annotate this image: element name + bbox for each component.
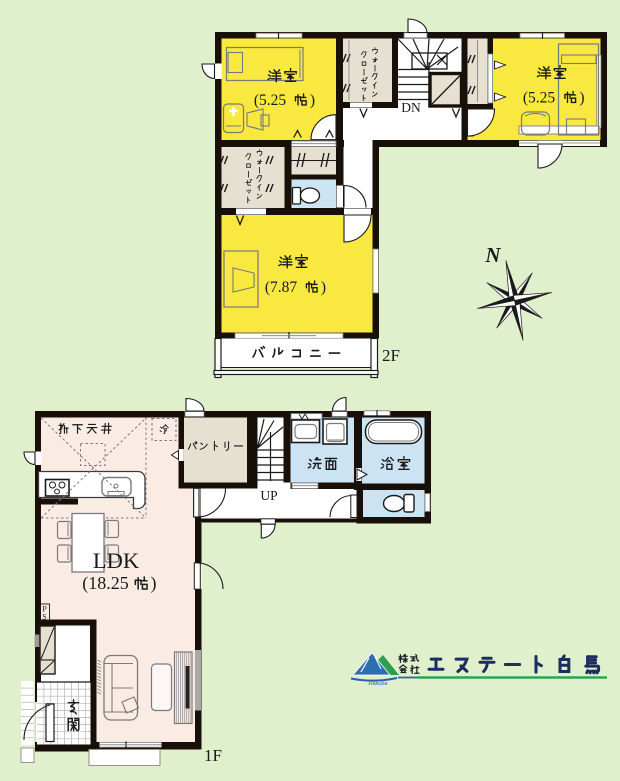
- svg-text:): ): [579, 90, 584, 107]
- svg-text:Hakuba: Hakuba: [369, 681, 388, 687]
- svg-text:N: N: [484, 243, 501, 267]
- svg-text:(18.25: (18.25: [82, 573, 129, 594]
- svg-text:(7.87: (7.87: [265, 279, 298, 296]
- svg-text:S: S: [42, 613, 46, 622]
- svg-text:): ): [321, 279, 326, 296]
- svg-text:LDK: LDK: [93, 548, 140, 573]
- svg-text:): ): [151, 573, 157, 594]
- svg-text:UP: UP: [260, 488, 277, 503]
- svg-text:(5.25: (5.25: [523, 90, 556, 107]
- svg-text:1F: 1F: [204, 746, 222, 765]
- svg-text:(5.25: (5.25: [254, 92, 287, 109]
- svg-text:2F: 2F: [382, 346, 400, 365]
- svg-text:DN: DN: [401, 100, 421, 115]
- svg-text:): ): [310, 92, 315, 109]
